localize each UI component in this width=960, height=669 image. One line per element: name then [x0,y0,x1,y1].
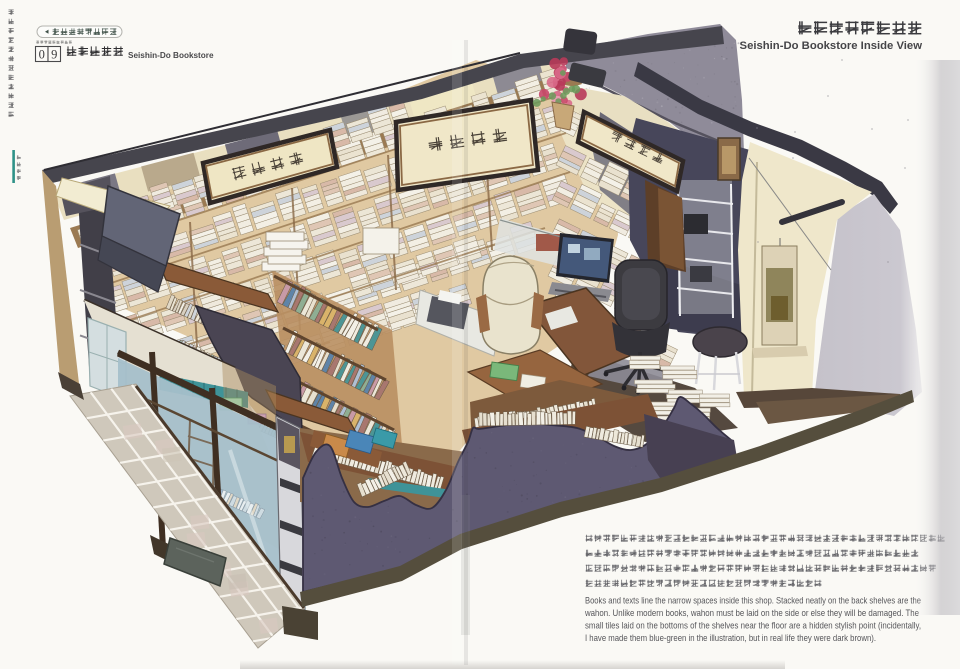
svg-text:9: 9 [51,48,57,62]
svg-text:wahon. Unlike modern books, wa: wahon. Unlike modern books, wahon must b… [584,608,919,618]
svg-text:Seishin-Do Bookstore: Seishin-Do Bookstore [128,51,214,60]
svg-text:Books and texts line the narro: Books and texts line the narrow spaces i… [585,596,921,606]
svg-text:small tiles laid on the bottom: small tiles laid on the bottoms of the s… [585,621,921,631]
svg-text:Seishin-Do Bookstore Inside Vi: Seishin-Do Bookstore Inside View [740,40,923,52]
svg-text:0: 0 [39,48,45,62]
svg-text:I have made them blue-green in: I have made them blue-green in the illus… [585,633,876,643]
